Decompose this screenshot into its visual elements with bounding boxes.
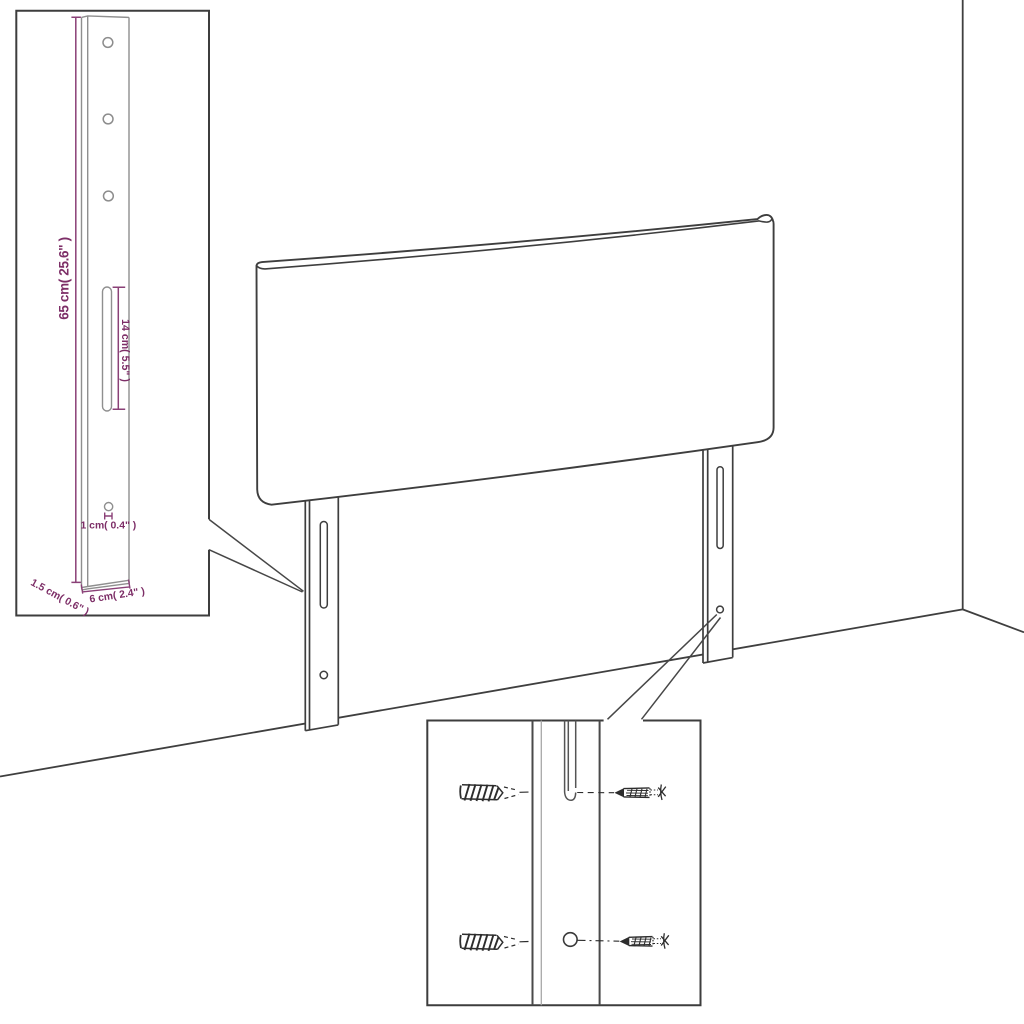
svg-text:1 cm( 0.4" ): 1 cm( 0.4" ) — [81, 521, 137, 532]
svg-text:65 cm( 25.6" ): 65 cm( 25.6" ) — [57, 237, 72, 320]
svg-text:14 cm( 5.5" ): 14 cm( 5.5" ) — [119, 319, 131, 382]
